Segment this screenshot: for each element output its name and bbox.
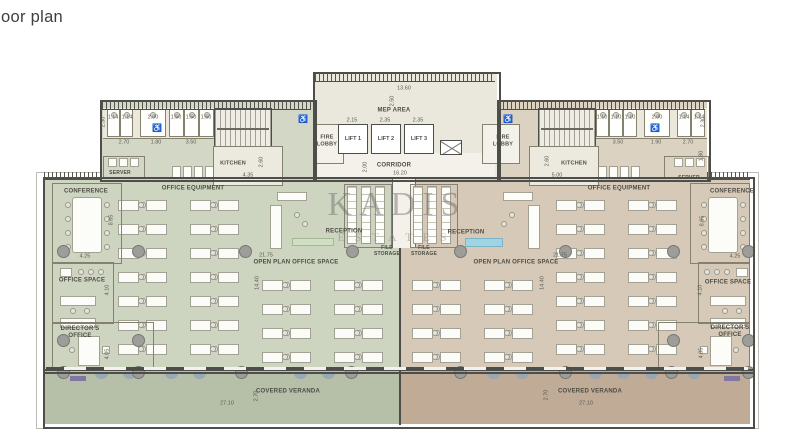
desk [218, 248, 239, 259]
lift-2-label: LIFT 2 [378, 136, 394, 142]
hatch-main-left-top [44, 172, 100, 180]
desk [656, 296, 677, 307]
chair [104, 230, 110, 236]
credenza-left [60, 268, 72, 277]
desk [556, 320, 577, 331]
planter-left [292, 238, 334, 246]
chair [576, 346, 582, 352]
desk [440, 280, 461, 291]
dimension-label: 2.15 [347, 118, 358, 124]
desk [512, 280, 533, 291]
desk [584, 272, 605, 283]
sink-unit [130, 158, 139, 167]
desk [628, 272, 649, 283]
chair [138, 274, 144, 280]
dimension-label: 1.14 [108, 115, 119, 121]
desk [512, 304, 533, 315]
floor-plan: LIFT 1 LIFT 2 LIFT 3 ♿ ♿ ♿ ♿ [0, 0, 796, 448]
hatch-main-right-top [707, 172, 750, 180]
chair [648, 250, 654, 256]
dimension-label: 21.75 [553, 253, 567, 259]
chair [138, 322, 144, 328]
storage-shelf [375, 186, 385, 244]
kitchen-chair [543, 177, 549, 182]
desk [290, 352, 311, 363]
room-label-open-plan-left: OPEN PLAN OFFICE SPACE [254, 259, 339, 266]
equipment-unit [194, 166, 203, 179]
chair [210, 322, 216, 328]
room-label-file-storage-right: FILE STORAGE [408, 245, 440, 257]
desk [556, 200, 577, 211]
desk [218, 200, 239, 211]
service-shaft [440, 140, 462, 155]
chair [432, 282, 438, 288]
dimension-label: 13.60 [397, 86, 411, 92]
chair [104, 244, 110, 250]
office-desk [60, 296, 96, 306]
dimension-label: 16.20 [393, 171, 407, 177]
desk [334, 304, 355, 315]
chair [84, 308, 90, 314]
desk [412, 352, 433, 363]
column [132, 334, 145, 347]
chair [354, 306, 360, 312]
dimension-label: 2.70 [544, 390, 550, 401]
equipment-unit [620, 166, 629, 179]
lift-2: LIFT 2 [371, 124, 401, 154]
lift-3: LIFT 3 [404, 124, 434, 154]
dimension-label: 2.70 [254, 391, 260, 402]
dimension-label: 1.14 [679, 115, 690, 121]
room-label-file-storage-left: FILE STORAGE [371, 245, 403, 257]
chair [70, 308, 76, 314]
chair [701, 244, 707, 250]
desk [190, 248, 211, 259]
room-label-office-space-right: OFFICE SPACE [705, 279, 751, 286]
dimension-label: 27.10 [220, 401, 234, 407]
room-label-server-right: SERVER [678, 175, 700, 181]
desk [656, 272, 677, 283]
desk [218, 296, 239, 307]
column [239, 245, 252, 258]
chair [648, 226, 654, 232]
chair [98, 269, 104, 275]
desk [440, 328, 461, 339]
equipment-unit [172, 166, 181, 179]
dimension-label: 2.35 [380, 118, 391, 124]
hatch-core-top [315, 73, 495, 82]
chair [282, 330, 288, 336]
desk [190, 296, 211, 307]
chair [138, 202, 144, 208]
chair [302, 221, 308, 227]
stair-divider [217, 128, 269, 130]
room-label-kitchen-left: KITCHEN [220, 161, 246, 168]
chair [432, 354, 438, 360]
conference-table-right [708, 197, 738, 253]
desk [218, 320, 239, 331]
stairwell-right [538, 108, 596, 148]
sink-unit [119, 158, 128, 167]
column [57, 245, 70, 258]
chair [210, 274, 216, 280]
chair [294, 212, 300, 218]
entrance-mat-right [724, 376, 740, 381]
credenza-right [736, 268, 748, 277]
window-band-bottom [46, 367, 748, 370]
chair [733, 347, 739, 353]
reception-counter-right [528, 205, 540, 249]
desk [190, 320, 211, 331]
stairwell-left [214, 108, 272, 148]
dimension-label: 14.40 [255, 276, 261, 290]
room-label-covered-veranda-left: COVERED VERANDA [256, 388, 320, 395]
hatch-wing-right-top [499, 101, 705, 110]
desk [118, 272, 139, 283]
sink-unit [674, 158, 683, 167]
room-label-conference-left: CONFERENCE [64, 188, 108, 195]
desk [584, 344, 605, 355]
water-feature [465, 238, 503, 247]
chair [282, 306, 288, 312]
dimension-label: 4.10 [105, 285, 111, 296]
chair [432, 306, 438, 312]
room-label-directors-office-right: DIRECTOR'S OFFICE [707, 325, 753, 339]
desk [512, 352, 533, 363]
dimension-label: 4.05 [105, 349, 111, 360]
chair [736, 308, 742, 314]
desk [334, 352, 355, 363]
chair [282, 354, 288, 360]
chair [282, 282, 288, 288]
desk [190, 224, 211, 235]
desk [628, 296, 649, 307]
lift-3-label: LIFT 3 [411, 136, 427, 142]
desk [146, 224, 167, 235]
entrance-mat-left [70, 376, 86, 381]
room-label-open-plan-right: OPEN PLAN OFFICE SPACE [474, 259, 559, 266]
dimension-label: 1.14 [122, 115, 133, 121]
desk [218, 344, 239, 355]
equipment-unit [631, 166, 640, 179]
dimension-label: 1.10 [611, 115, 622, 121]
dimension-label: 2.70 [119, 140, 130, 146]
desk [118, 320, 139, 331]
room-label-conference-right: CONFERENCE [710, 188, 754, 195]
floor-plan-canvas: oor plan [0, 0, 796, 448]
desk [440, 352, 461, 363]
desk [218, 272, 239, 283]
chair [210, 226, 216, 232]
chair [648, 274, 654, 280]
desk [412, 304, 433, 315]
desk [484, 280, 505, 291]
desk [628, 200, 649, 211]
chair [704, 269, 710, 275]
chair [740, 216, 746, 222]
dimension-label: 2.60 [545, 156, 551, 167]
dimension-label: 1.50 [171, 115, 182, 121]
column [132, 245, 145, 258]
dimension-label: 27.10 [579, 401, 593, 407]
chair [648, 202, 654, 208]
desk [290, 280, 311, 291]
desk [556, 224, 577, 235]
dimension-label: 1.10 [597, 115, 608, 121]
column [742, 245, 755, 258]
equipment-unit [205, 166, 214, 179]
chair [65, 202, 71, 208]
dimension-label: 5.00 [552, 173, 563, 179]
chair [504, 306, 510, 312]
desk [584, 320, 605, 331]
office-desk [710, 296, 746, 306]
room-label-fire-lobby-left: FIRE LOBBY [314, 134, 340, 147]
desk [218, 224, 239, 235]
dimension-label: 14.40 [540, 276, 546, 290]
desk [190, 272, 211, 283]
chair [504, 282, 510, 288]
room-label-corridor: CORRIDOR [377, 162, 411, 169]
storage-shelf [413, 186, 423, 244]
desk [512, 328, 533, 339]
desk [412, 328, 433, 339]
dimension-label: 8.65 [109, 215, 115, 226]
chair [576, 202, 582, 208]
storage-shelf [361, 186, 371, 244]
desk [262, 304, 283, 315]
chair [576, 298, 582, 304]
equipment-unit [183, 166, 192, 179]
chair [354, 330, 360, 336]
chair [138, 298, 144, 304]
chair [88, 269, 94, 275]
dimension-label: 2.35 [413, 118, 424, 124]
dimension-label: 1.80 [151, 140, 162, 146]
desk [628, 224, 649, 235]
dimension-label: 3.50 [186, 140, 197, 146]
sink-unit [685, 158, 694, 167]
desk [584, 296, 605, 307]
dimension-label: 2.30 [101, 117, 107, 128]
chair [210, 202, 216, 208]
room-label-kitchen-right: KITCHEN [561, 161, 587, 168]
wheelchair-icon: ♿ [650, 124, 660, 133]
room-label-directors-office-left: DIRECTOR'S OFFICE [57, 326, 103, 340]
desk [584, 200, 605, 211]
desk [362, 328, 383, 339]
dimension-label: 8.65 [700, 216, 706, 227]
chair [354, 282, 360, 288]
chair [576, 226, 582, 232]
chair [504, 354, 510, 360]
room-label-reception-right: RECEPTION [448, 229, 485, 236]
directors-desk-left [78, 336, 100, 366]
chair [740, 230, 746, 236]
chair [701, 202, 707, 208]
dimension-label: 1.80 [699, 151, 705, 162]
desk [334, 280, 355, 291]
column [667, 245, 680, 258]
chair [509, 212, 515, 218]
desk [412, 280, 433, 291]
chair [648, 298, 654, 304]
chair [648, 322, 654, 328]
desk [484, 304, 505, 315]
room-label-fire-lobby-right: FIRE LOBBY [490, 134, 516, 147]
desk [262, 280, 283, 291]
column [667, 334, 680, 347]
kitchen-chair [227, 177, 233, 182]
kitchen-chair [563, 177, 569, 182]
chair [648, 346, 654, 352]
desk [656, 320, 677, 331]
room-label-mep-area: MEP AREA [378, 107, 411, 114]
chair [210, 250, 216, 256]
dimension-label: 4.05 [699, 348, 705, 359]
chair [69, 347, 75, 353]
lift-1: LIFT 1 [338, 124, 368, 154]
wheelchair-icon: ♿ [298, 115, 308, 124]
desk [118, 224, 139, 235]
dimension-label: 1.90 [651, 140, 662, 146]
desk [118, 296, 139, 307]
desk [290, 304, 311, 315]
waiting-sofa-left [277, 192, 307, 201]
chair [714, 269, 720, 275]
desk [362, 280, 383, 291]
dimension-label: 2.70 [683, 140, 694, 146]
dimension-label: 4.35 [243, 173, 254, 179]
desk [628, 344, 649, 355]
dimension-label: 2.00 [148, 115, 159, 121]
chair [576, 322, 582, 328]
directors-desk-right [710, 336, 732, 366]
room-label-office-equipment-right: OFFICE EQUIPMENT [588, 185, 651, 192]
chair [65, 216, 71, 222]
storage-shelf [427, 186, 437, 244]
conference-table-left [72, 197, 102, 253]
desk [118, 200, 139, 211]
room-label-office-space-left: OFFICE SPACE [59, 277, 105, 284]
dimension-label: 4.25 [730, 254, 741, 260]
desk [362, 304, 383, 315]
chair [210, 298, 216, 304]
room-label-covered-veranda-right: COVERED VERANDA [558, 388, 622, 395]
room-label-office-equipment-left: OFFICE EQUIPMENT [162, 185, 225, 192]
chair [104, 202, 110, 208]
dimension-label: 2.30 [701, 117, 707, 128]
chair [354, 354, 360, 360]
desk [190, 344, 211, 355]
wheelchair-icon: ♿ [503, 115, 513, 124]
dimension-label: 2.00 [363, 162, 369, 173]
chair [78, 269, 84, 275]
desk [146, 272, 167, 283]
desk [190, 200, 211, 211]
desk [262, 352, 283, 363]
desk [484, 328, 505, 339]
dimension-label: 21.75 [259, 253, 273, 259]
dimension-label: 2.50 [390, 96, 396, 107]
desk [628, 248, 649, 259]
wheelchair-icon: ♿ [152, 124, 162, 133]
lift-1-label: LIFT 1 [345, 136, 361, 142]
dimension-label: 2.00 [652, 115, 663, 121]
desk [484, 352, 505, 363]
desk [556, 272, 577, 283]
column [346, 245, 359, 258]
center-divider-wall [399, 248, 401, 425]
chair [432, 330, 438, 336]
dimension-label: 4.10 [698, 285, 704, 296]
dimension-label: 3.50 [613, 140, 624, 146]
desk [146, 248, 167, 259]
desk [584, 224, 605, 235]
chair [740, 202, 746, 208]
dimension-label: 1.50 [186, 115, 197, 121]
desk [556, 344, 577, 355]
chair [210, 346, 216, 352]
desk [146, 344, 167, 355]
equipment-unit [598, 166, 607, 179]
chair [501, 221, 507, 227]
desk [334, 328, 355, 339]
desk [146, 200, 167, 211]
desk [290, 328, 311, 339]
desk [656, 224, 677, 235]
desk [440, 304, 461, 315]
dimension-label: 4.25 [80, 254, 91, 260]
stair-divider [541, 128, 593, 130]
chair [576, 274, 582, 280]
chair [504, 330, 510, 336]
desk [146, 320, 167, 331]
reception-counter-left [270, 205, 282, 249]
room-label-server-left: SERVER [109, 170, 131, 176]
dimension-label: 2.60 [259, 157, 265, 168]
desk [262, 328, 283, 339]
chair [701, 230, 707, 236]
hatch-wing-left-top [102, 101, 311, 110]
desk [584, 248, 605, 259]
sink-unit [108, 158, 117, 167]
desk [362, 352, 383, 363]
dimension-label: 1.10 [625, 115, 636, 121]
room-label-reception-left: RECEPTION [326, 228, 363, 235]
equipment-unit [609, 166, 618, 179]
desk [628, 320, 649, 331]
dimension-label: 1.50 [201, 115, 212, 121]
chair [724, 269, 730, 275]
desk [146, 296, 167, 307]
chair [576, 250, 582, 256]
desk [656, 200, 677, 211]
chair [138, 226, 144, 232]
desk [556, 296, 577, 307]
chair [722, 308, 728, 314]
waiting-sofa-right [503, 192, 533, 201]
chair [65, 230, 71, 236]
column [454, 245, 467, 258]
